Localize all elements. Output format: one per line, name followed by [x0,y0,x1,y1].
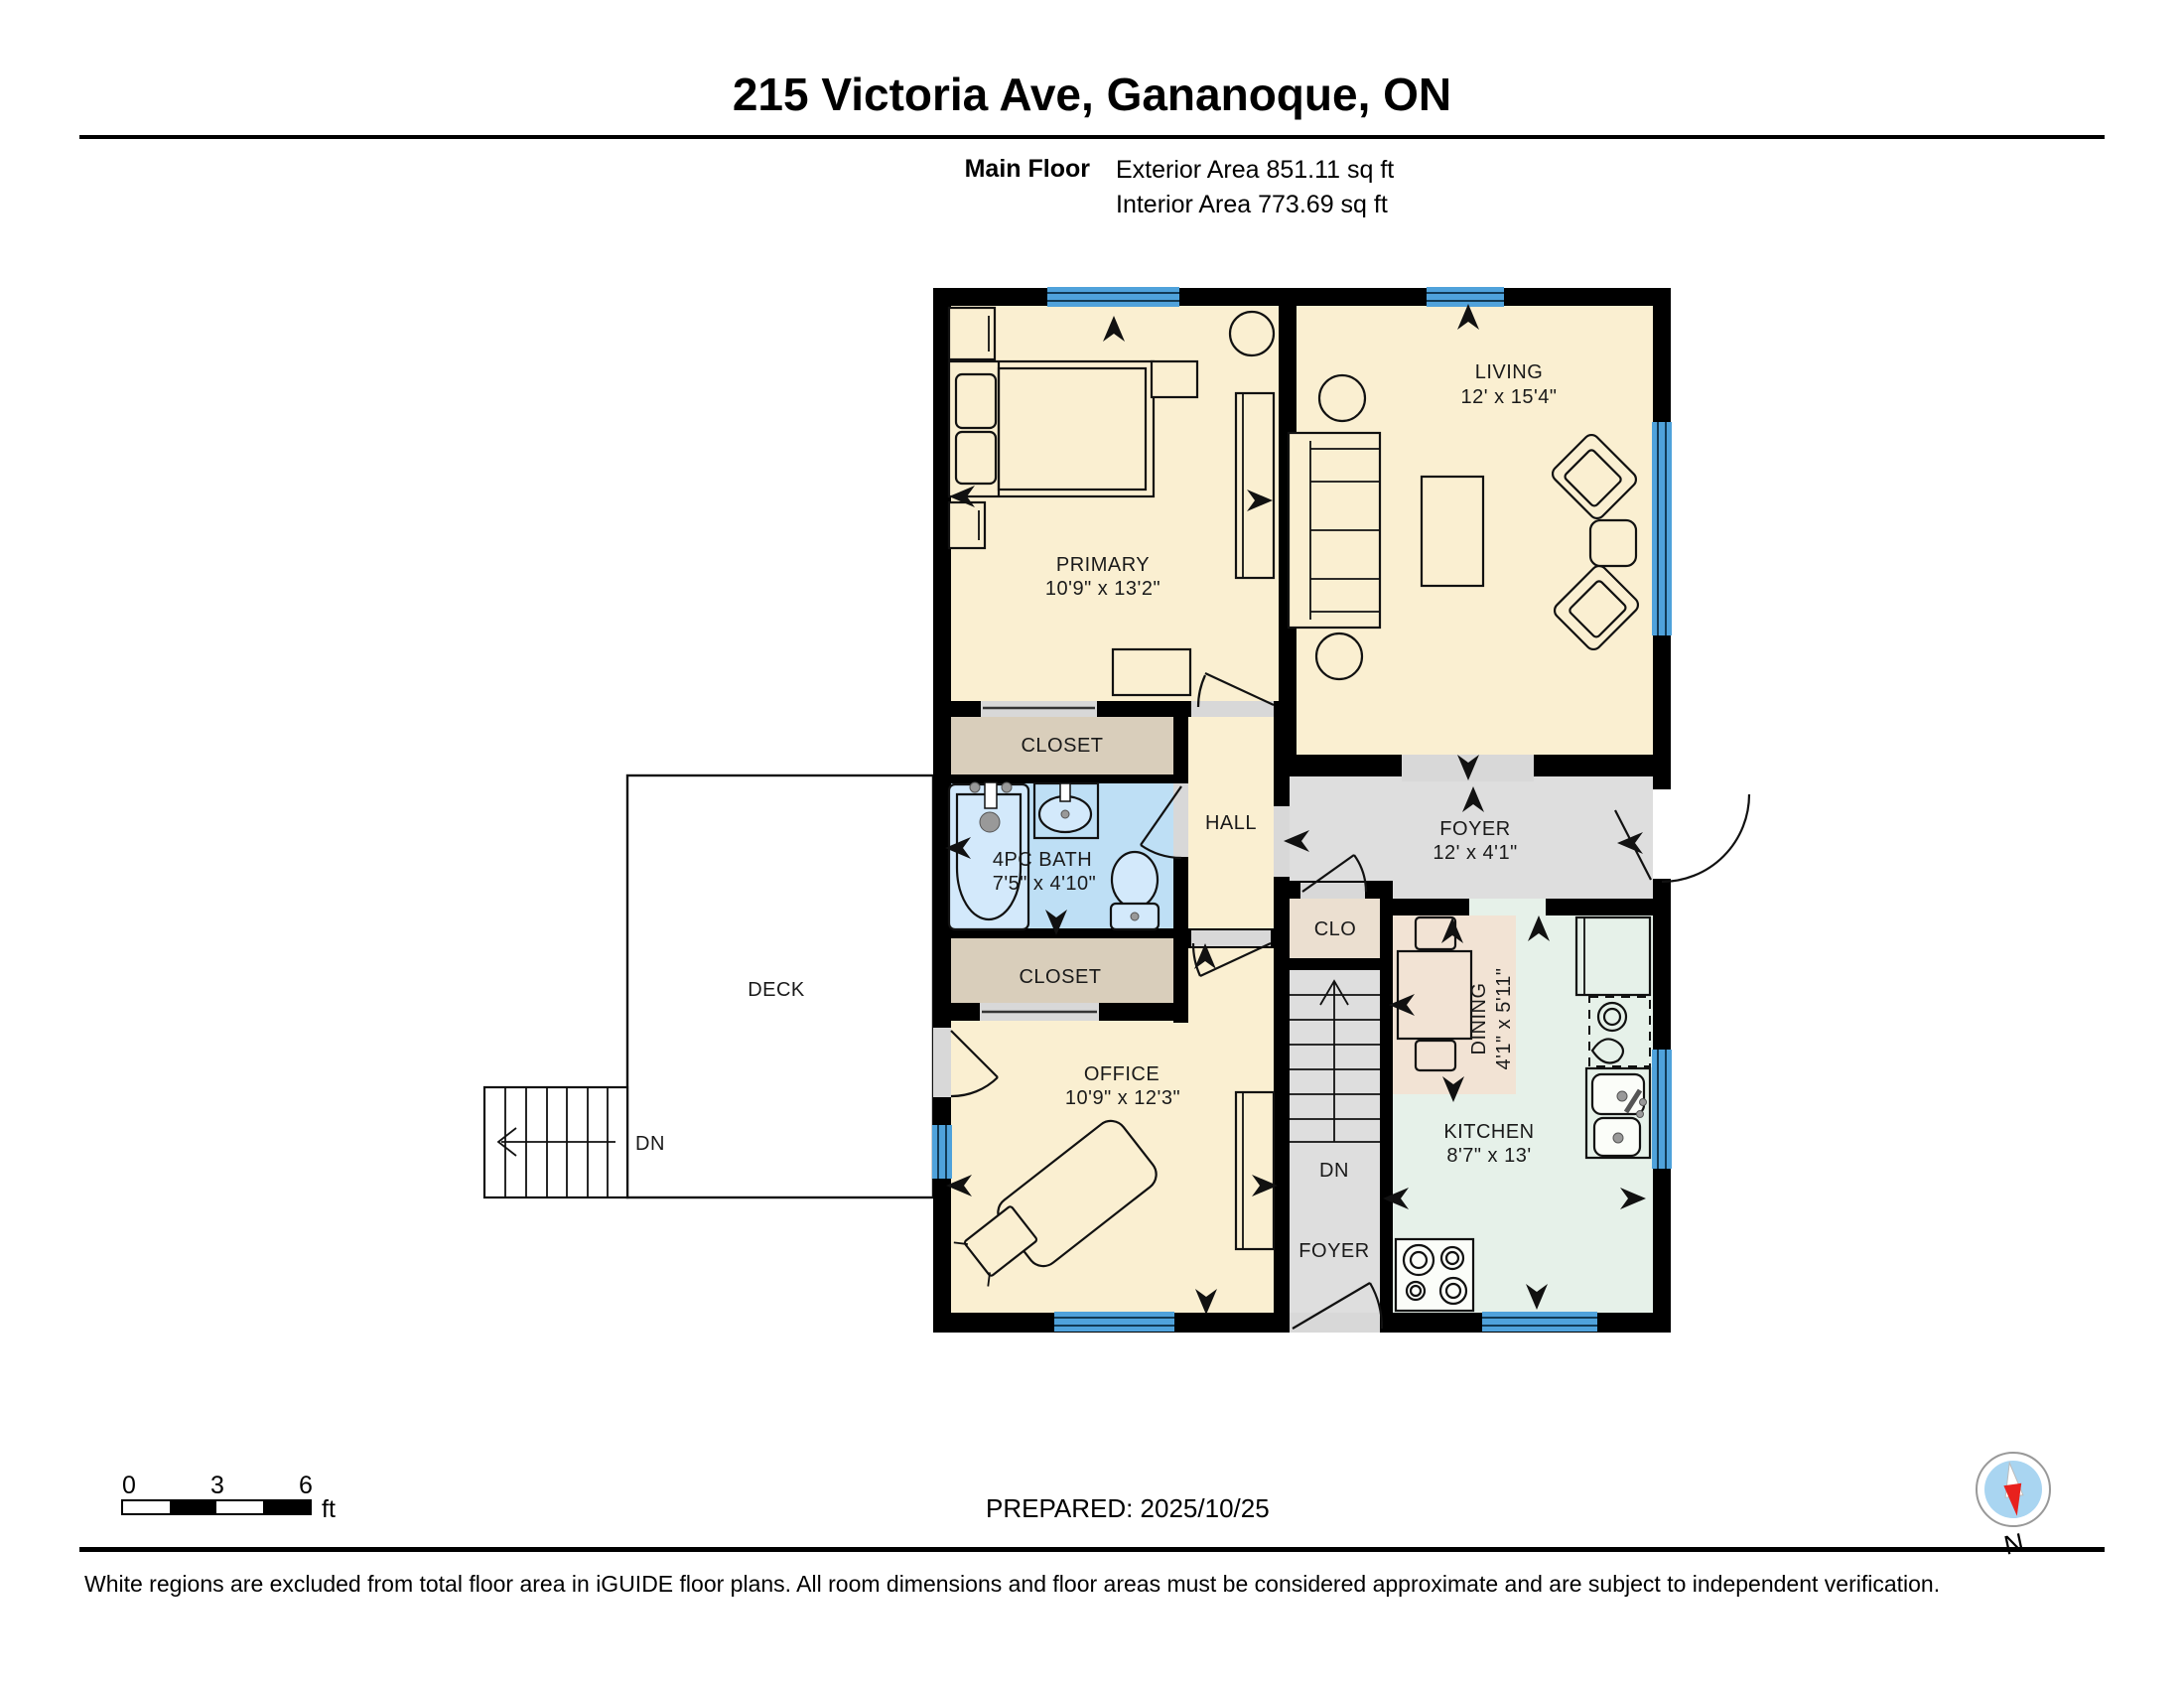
office-label: OFFICE [1084,1063,1160,1085]
dresser [1113,649,1190,695]
deck-dn-label: DN [635,1133,665,1155]
wardrobe [1236,393,1274,578]
foyer-dims: 12' x 4'1" [1433,842,1517,864]
round-table [1230,312,1274,355]
scale-tick-3: 3 [198,1472,237,1500]
hall-label: HALL [1205,812,1257,834]
scale-tick-0: 0 [109,1472,149,1500]
footer-divider [79,1547,2105,1552]
disclaimer-text: White regions are excluded from total fl… [84,1571,1971,1598]
nightstand [949,502,985,548]
round-table [1319,375,1365,421]
scale-bar [121,1499,312,1515]
living-dims: 12' x 15'4" [1461,386,1558,408]
floor-plan-drawing: PRIMARY 10'9" x 13'2" LIVING 12' x 15'4"… [0,0,2184,1688]
stove [1396,1239,1473,1311]
foyer-label: FOYER [1439,818,1510,840]
bed [949,361,1154,496]
stairs-foyer-label: FOYER [1298,1240,1369,1262]
coffee-table [1422,477,1483,586]
scale-tick-6: 6 [286,1472,326,1500]
bath-label: 4PC BATH [993,849,1092,871]
floor-plan-page: 215 Victoria Ave, Gananoque, ON Main Flo… [0,0,2184,1688]
toilet [1111,852,1159,929]
dining-dims: 4'1" x 5'11" [1493,967,1515,1069]
side-table [1590,520,1636,566]
closet-lower-label: CLOSET [1019,966,1101,988]
kitchen-label: KITCHEN [1443,1121,1534,1143]
deck-outline [484,775,933,1197]
clo-label: CLO [1314,918,1357,940]
kitchen-dims: 8'7" x 13' [1446,1145,1531,1167]
primary-dims: 10'9" x 13'2" [1045,578,1160,600]
compass: N [1969,1448,2078,1557]
dining-label: DINING [1468,983,1490,1055]
round-table [1316,633,1362,679]
bath-dims: 7'5" x 4'10" [993,873,1097,895]
deck-label: DECK [748,979,805,1001]
closet-upper-label: CLOSET [1021,735,1103,757]
sofa [1289,433,1380,628]
scale-unit: ft [322,1495,336,1524]
wardrobe [1236,1092,1274,1249]
prepared-date: PREPARED: 2025/10/25 [986,1493,1270,1524]
kitchen-sink [1586,1068,1650,1158]
nightstand [949,308,995,359]
stairs-dn-label: DN [1319,1160,1349,1182]
primary-label: PRIMARY [1056,554,1150,576]
living-label: LIVING [1475,361,1544,383]
bench [1152,361,1197,397]
office-dims: 10'9" x 12'3" [1065,1087,1180,1109]
